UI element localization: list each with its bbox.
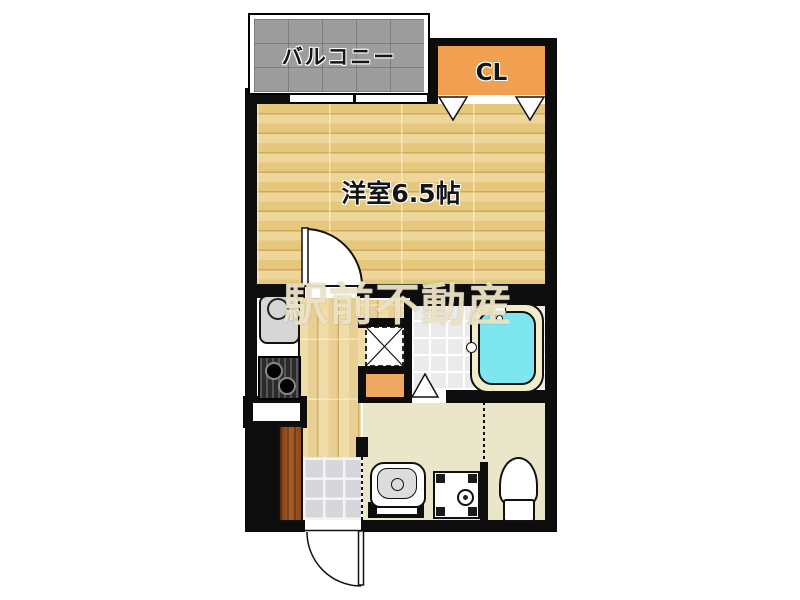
stove-burner-icon (265, 362, 283, 380)
wash-basin-drain-icon (391, 478, 404, 491)
washer-drain-icon (457, 489, 474, 506)
floorplan-canvas: バルコニー CL (0, 0, 800, 600)
closet-door-strip (438, 95, 545, 104)
stove-burner-icon (278, 377, 296, 395)
washer-drain-dot (463, 495, 468, 500)
wall-hall-stub (356, 437, 368, 457)
shoe-cabinet (278, 425, 303, 522)
wall-entry-left (245, 425, 278, 523)
wall-closet-left (430, 38, 438, 104)
basin-counter-inset (377, 508, 417, 514)
storage-counter (366, 374, 404, 397)
wall-closet-top (430, 38, 557, 46)
wall-toilet-divider (480, 462, 488, 520)
washer-corner (468, 474, 477, 483)
closet-label: CL (438, 60, 545, 86)
kitchen-end-niche (253, 403, 300, 421)
wall-right (545, 38, 557, 532)
washing-machine-space (433, 471, 480, 519)
bathtub-knob-icon (466, 342, 477, 353)
wall-bath-bottom-stub (404, 390, 412, 403)
balcony-label: バルコニー (250, 41, 428, 71)
entrance-tile-floor (303, 457, 361, 520)
balcony: バルコニー (248, 13, 430, 95)
washer-corner (436, 474, 445, 483)
toilet-tank (503, 499, 535, 522)
watermark: 駅前不動産 (283, 268, 513, 333)
main-room-label: 洋室6.5帖 (257, 174, 545, 210)
washer-corner (436, 507, 445, 516)
gas-stove (258, 356, 301, 400)
washer-corner (468, 507, 477, 516)
wall-washroom-top (358, 397, 408, 403)
entrance-door-swing (305, 531, 364, 587)
